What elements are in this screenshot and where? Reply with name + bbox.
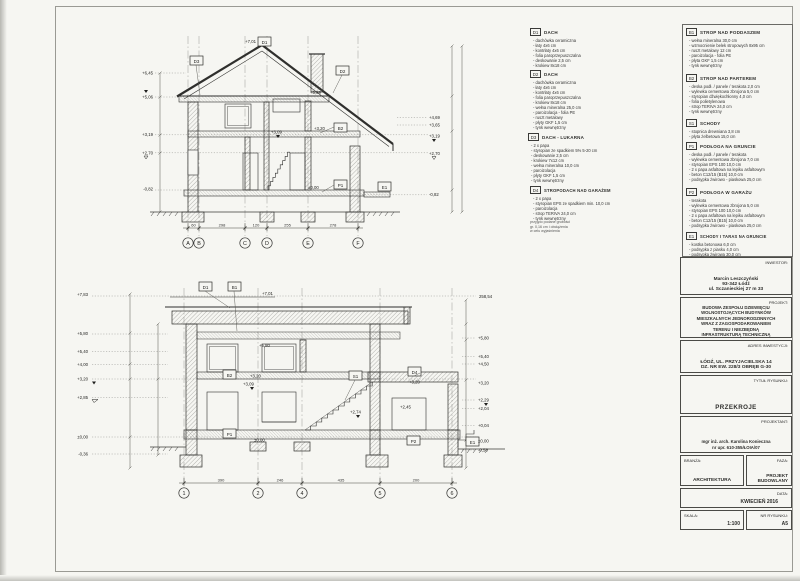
dim-label: 298: [219, 223, 226, 228]
legend-title: DACH: [544, 30, 558, 35]
skala-label: SKALA:: [684, 513, 740, 518]
dim-label: 390: [218, 478, 225, 483]
level-label-right: +2,70: [429, 151, 440, 156]
level-label: ±0,00: [254, 438, 265, 443]
adres-label: ADRES INWESTYCJI:: [684, 343, 788, 348]
faza-label: FAZA:: [750, 458, 788, 463]
legend-title: SCHODY I TARAS NA GRUNCIE: [700, 234, 767, 239]
level-label-right: +2,29: [478, 398, 489, 403]
inwestor-label: INWESTOR:: [684, 260, 788, 265]
inwestor-street: ul. Sczanieckiej 27 m 33: [684, 287, 788, 292]
grid-bubbles: 1 2 4 5 6: [179, 488, 457, 498]
stairs: [268, 152, 290, 190]
legend-block-d2: D2 DACH dachówka ceramiczna łaty 4x6 cm …: [530, 70, 640, 130]
tag-b2: B2: [338, 126, 344, 131]
bottom-section-drawing: 390 246 435 200 1 2 4 5 6 D1 B1: [55, 275, 530, 520]
titleblock-projektant: PROJEKTANT: mgr inż. arch. Karolina Koni…: [680, 416, 792, 453]
level-label-left: +3,20: [77, 377, 88, 382]
tag-e1: E1: [470, 440, 476, 445]
level-label: +5,80: [259, 343, 270, 348]
grid-bubble-label: 5: [379, 491, 382, 497]
legend-item: tynk wewnętrzny: [528, 178, 638, 183]
level-label-right: +5,40: [478, 354, 489, 359]
scan-edge-bottom: [0, 575, 800, 581]
level-label: +3,20: [409, 380, 420, 385]
titleblock-nr: NR RYSUNKU: A5: [746, 510, 792, 530]
grid-bubble-label: E: [306, 241, 310, 247]
titleblock-data: DATA: KWIECIEŃ 2016: [680, 488, 792, 508]
tag-d1: D1: [203, 285, 209, 290]
grid-bubble-label: C: [243, 241, 247, 247]
projekt-line: INFRASTRUKTURĄ TECHNICZNĄ: [684, 332, 788, 337]
level-marker: [92, 382, 96, 385]
legend-block-p2: P2 PODŁOGA W GARAŻU terakota wylewka cem…: [686, 188, 790, 228]
legend-code: E1: [686, 232, 697, 240]
level-label: +5,89: [310, 90, 321, 95]
data-value: KWIECIEŃ 2016: [684, 499, 788, 505]
dim-label: 120: [253, 223, 260, 228]
stairs: [305, 382, 372, 430]
legend-code: P1: [686, 142, 697, 150]
level-label-left: +6,45: [142, 71, 153, 76]
level-label: +3,20: [250, 374, 261, 379]
legend-block-s1: S1 SCHODY stopnica drewniana 3,8 cm płyt…: [686, 119, 790, 139]
level-label-left: +7,83: [77, 292, 88, 297]
legend-code: D4: [530, 186, 541, 194]
projektant-label: PROJEKTANT:: [684, 419, 788, 424]
dim-label: 246: [277, 478, 284, 483]
level-marker: [92, 400, 98, 403]
ridge-level: +7,01: [245, 39, 256, 44]
legend-code: D2: [530, 70, 541, 78]
level-label-left: +5,06: [142, 95, 153, 100]
foundations: [182, 212, 364, 222]
legend-item: tynk wewnętrzny: [530, 125, 640, 130]
legend-title: STROP NAD PARTEREM: [700, 76, 756, 81]
grid-bubble-label: D: [265, 241, 269, 247]
level-label: +3,09: [243, 382, 254, 387]
level-marker: [356, 415, 360, 418]
nr-value: A5: [750, 521, 788, 527]
drawing-title: PRZEKROJE: [684, 404, 788, 411]
level-label-right: +4,69: [429, 115, 440, 120]
level-label-left: +5,40: [77, 349, 88, 354]
legend-title: PODŁOGA W GARAŻU: [700, 190, 752, 195]
dim-label: 435: [338, 478, 345, 483]
titleblock-skala: SKALA: 1:100: [680, 510, 744, 530]
legend-block-b1: B1 STROP NAD PODDASZEM wełna mineralna 3…: [686, 28, 790, 68]
legend-title: DACH: [544, 72, 558, 77]
titleblock-inwestor: INWESTOR: Marcin Leszczyński 93-342 Łódź…: [680, 257, 792, 295]
level-label-right: +3,65: [429, 123, 440, 128]
legend-note: przyjęto podane grubości gr. 0,16 cm i o…: [530, 220, 640, 234]
drawing-sheet: 60 298 120 255 278 A B C D E F: [0, 0, 800, 581]
legend-block-d3: D3 DACH - LUKARNA 2 x papa styropian ze …: [528, 133, 638, 183]
scan-edge-left: [0, 0, 7, 581]
dim-label: 60: [191, 223, 196, 228]
level-label-left: -0,36: [78, 452, 88, 457]
tytul-label: TYTUŁ RYSUNKU:: [684, 378, 788, 383]
branza-label: BRANŻA:: [684, 458, 740, 463]
level-label-right: +5,80: [478, 336, 489, 341]
level-label-right: -0,58: [478, 448, 488, 453]
level-label-left: +2,70: [142, 151, 153, 156]
level-label: +3,20: [314, 126, 325, 131]
level-label-right: +2,04: [478, 406, 489, 411]
legend-block-d1: D1 DACH dachówka ceramiczna łaty 4x6 cm …: [530, 28, 640, 68]
level-label-right: +0,04: [478, 423, 489, 428]
level-marker: [144, 156, 148, 159]
dim-label: 255: [284, 223, 291, 228]
top-section-drawing: 60 298 120 255 278 A B C D E F: [55, 8, 470, 260]
legend-code: B1: [686, 28, 697, 36]
legend-code: S1: [686, 119, 697, 127]
chimney: [311, 54, 323, 92]
dim-label: 200: [413, 478, 420, 483]
tag-p1: P1: [227, 432, 233, 437]
grid-bubble-label: B: [197, 241, 201, 247]
legend-item: tynk wewnętrzny: [686, 109, 790, 114]
legend-block-p1: P1 PODŁOGA NA GRUNCIE deska podł. / pane…: [686, 142, 790, 182]
level-label-right: ±0,00: [478, 439, 489, 444]
level-label: +2,74: [350, 410, 361, 415]
tag-boxes: [190, 37, 391, 191]
roof-slab: [165, 297, 412, 324]
titleblock-adres: ADRES INWESTYCJI: ŁÓDŹ, UL. PRZYJACIELSK…: [680, 340, 792, 373]
legend-block-e1: E1 SCHODY I TARAS NA GRUNCIE kostka beto…: [686, 232, 790, 257]
legend-title: PODŁOGA NA GRUNCIE: [700, 144, 756, 149]
grid-bubble-label: A: [186, 241, 190, 247]
legend-title: STROP NAD PODDASZEM: [700, 30, 760, 35]
skala-value: 1:100: [684, 521, 740, 527]
faza-line: BUDOWLANY: [750, 478, 788, 483]
level-label: ±0,00: [308, 185, 319, 190]
level-label-left: +4,00: [77, 362, 88, 367]
level-label-right: +3,19: [429, 134, 440, 139]
adres-line: DZ. NR EW. 228/3 OBRĘB G-30: [684, 365, 788, 370]
titleblock-projekt: PROJEKT: BUDOWA ZESPOŁU DZIEWIĘCIU WOLNO…: [680, 297, 792, 338]
titleblock-faza: FAZA: PROJEKT BUDOWLANY: [746, 455, 792, 486]
legend-note-line: w celu wyjaśnienia: [530, 229, 640, 234]
ceiling-slab: [197, 332, 400, 339]
branza-value: ARCHITEKTURA: [684, 478, 740, 483]
nr-label: NR RYSUNKU:: [750, 513, 788, 518]
legend-block-b2: B2 STROP NAD PARTEREM deska podł. / pane…: [686, 74, 790, 114]
legend-block-d4: D4 STROPODACH NAD GARAŻEM 2 x papa styro…: [530, 186, 640, 221]
datum-level: 258,54: [479, 294, 493, 299]
level-label-right: -0,82: [429, 192, 439, 197]
tag-b1: B1: [232, 285, 238, 290]
legend-item: płyta żelbetowa 15,0 cm: [686, 134, 790, 139]
top-level: +7,01: [262, 291, 273, 296]
level-label: +2,45: [400, 405, 411, 410]
legend-item: podsypka żwirowo - piaskowa 25,0 cm: [686, 223, 790, 228]
legend-title: STROPODACH NAD GARAŻEM: [544, 188, 611, 193]
level-marker: [250, 387, 254, 390]
projektant-nr: nr upr. 610-355/ŁOIA/07: [684, 445, 788, 450]
legend-code: D1: [530, 28, 541, 36]
tag-d3: D3: [194, 59, 200, 64]
tag-e1: E1: [382, 185, 388, 190]
legend-code: B2: [686, 74, 697, 82]
dim-label: 278: [330, 223, 337, 228]
foundations: [180, 442, 462, 467]
tag-p2: P2: [411, 439, 417, 444]
tag-d1: D1: [262, 40, 268, 45]
legend-item: podsypka żwirowo - piaskowa 25,0 cm: [686, 177, 790, 182]
level-label-right: +4,50: [478, 362, 489, 367]
data-label: DATA:: [684, 491, 788, 496]
grid-bubble-label: 2: [257, 491, 260, 497]
grid-bubbles: A B C D E F: [183, 238, 363, 248]
level-label-left: +2,85: [77, 395, 88, 400]
tag-b2: B2: [227, 373, 233, 378]
tag-s1: S1: [353, 374, 359, 379]
tag-d2: D2: [340, 69, 346, 74]
level-marker: [432, 157, 436, 160]
legend-title: SCHODY: [700, 121, 720, 126]
level-label-right: +3,20: [478, 381, 489, 386]
legend-code: P2: [686, 188, 697, 196]
titleblock-branza: BRANŻA: ARCHITEKTURA: [680, 455, 744, 486]
level-label-left: +3,19: [142, 132, 153, 137]
legend-item: krokiew 8x18 cm: [530, 63, 640, 68]
legend-title: DACH - LUKARNA: [542, 135, 584, 140]
grid-bubble-label: 1: [183, 491, 186, 497]
grid-bubble-label: 6: [451, 491, 454, 497]
titleblock-tytul: TYTUŁ RYSUNKU: PRZEKROJE: [680, 375, 792, 414]
level-label-left: -0,82: [143, 187, 153, 192]
level-label-left: +5,80: [77, 331, 88, 336]
openings: [207, 344, 426, 430]
legend-item: tynk wewnętrzny: [686, 63, 790, 68]
level-label-left: ±0,00: [77, 435, 88, 440]
level-label: +3,09: [271, 130, 282, 135]
tag-d4: D4: [412, 370, 418, 375]
level-marker: [432, 139, 436, 142]
tag-p1: P1: [338, 183, 344, 188]
legend-code: D3: [528, 133, 539, 141]
grid-bubble-label: 4: [301, 491, 304, 497]
level-marker: [144, 90, 148, 93]
